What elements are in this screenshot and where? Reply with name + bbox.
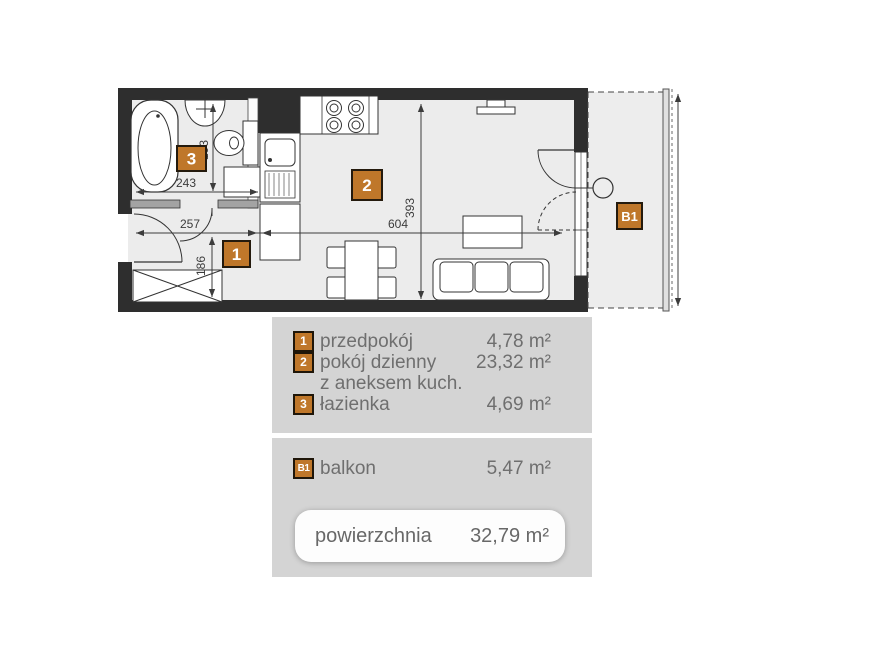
balcony-total-panel: B1 balkon 5,47 m² powierzchnia 32,79 m² xyxy=(272,438,592,577)
room-area: 23,32 m² xyxy=(476,352,551,374)
dim-living-height: 393 xyxy=(403,198,417,218)
room-area: 4,78 m² xyxy=(487,331,551,353)
balcony-railing xyxy=(663,89,669,311)
wardrobe xyxy=(133,270,222,302)
dining-table xyxy=(345,241,378,300)
dim-bath-width: 243 xyxy=(176,176,196,190)
floor-plan: 243 193 257 186 604 393 3 2 1 B1 xyxy=(0,0,894,330)
legend-row-aneks: z aneksem kuch. xyxy=(293,373,551,394)
door-handle-mark xyxy=(593,178,613,198)
room-number-badge: B1 xyxy=(293,458,314,479)
rooms-legend-panel: 1 przedpokój 4,78 m² 2 pokój dzienny 23,… xyxy=(272,317,592,433)
kitchen-sink-unit xyxy=(260,133,300,202)
room-name: przedpokój xyxy=(320,331,487,353)
room-label-balcony: B1 xyxy=(617,203,642,229)
bathtub xyxy=(131,100,178,192)
total-area-value: 32,79 m² xyxy=(470,525,549,548)
svg-text:B1: B1 xyxy=(621,209,638,224)
legend-row-przedpokoj: 1 przedpokój 4,78 m² xyxy=(293,331,551,352)
coffee-table xyxy=(463,216,522,248)
svg-text:3: 3 xyxy=(187,150,196,169)
room-number-badge: 3 xyxy=(293,394,314,415)
room-name: balkon xyxy=(320,458,487,480)
sofa xyxy=(433,259,549,300)
dim-hall-height: 186 xyxy=(194,256,208,276)
dim-hall-width: 257 xyxy=(180,217,200,231)
total-area-box: powierzchnia 32,79 m² xyxy=(295,510,565,562)
room-number-badge: 1 xyxy=(293,331,314,352)
svg-text:2: 2 xyxy=(362,176,371,195)
room-area: 5,47 m² xyxy=(487,458,551,480)
legend-row-pokoj-dzienny: 2 pokój dzienny 23,32 m² xyxy=(293,352,551,373)
room-label-living: 2 xyxy=(352,170,382,200)
total-area-label: powierzchnia xyxy=(315,525,432,548)
room-name: pokój dzienny xyxy=(320,352,476,374)
room-number-badge: 2 xyxy=(293,352,314,373)
svg-text:1: 1 xyxy=(232,245,241,264)
legend-row-lazienka: 3 łazienka 4,69 m² xyxy=(293,394,551,415)
room-label-hall: 1 xyxy=(223,241,250,267)
room-name: z aneksem kuch. xyxy=(320,373,551,395)
floorplan-page: 243 193 257 186 604 393 3 2 1 B1 1 przed… xyxy=(0,0,894,657)
stove-counter xyxy=(300,96,378,134)
room-area: 4,69 m² xyxy=(487,394,551,416)
legend-row-balkon: B1 balkon 5,47 m² xyxy=(293,458,551,479)
room-label-bath: 3 xyxy=(177,146,206,171)
dim-living-width: 604 xyxy=(388,217,408,231)
room-name: łazienka xyxy=(320,394,487,416)
